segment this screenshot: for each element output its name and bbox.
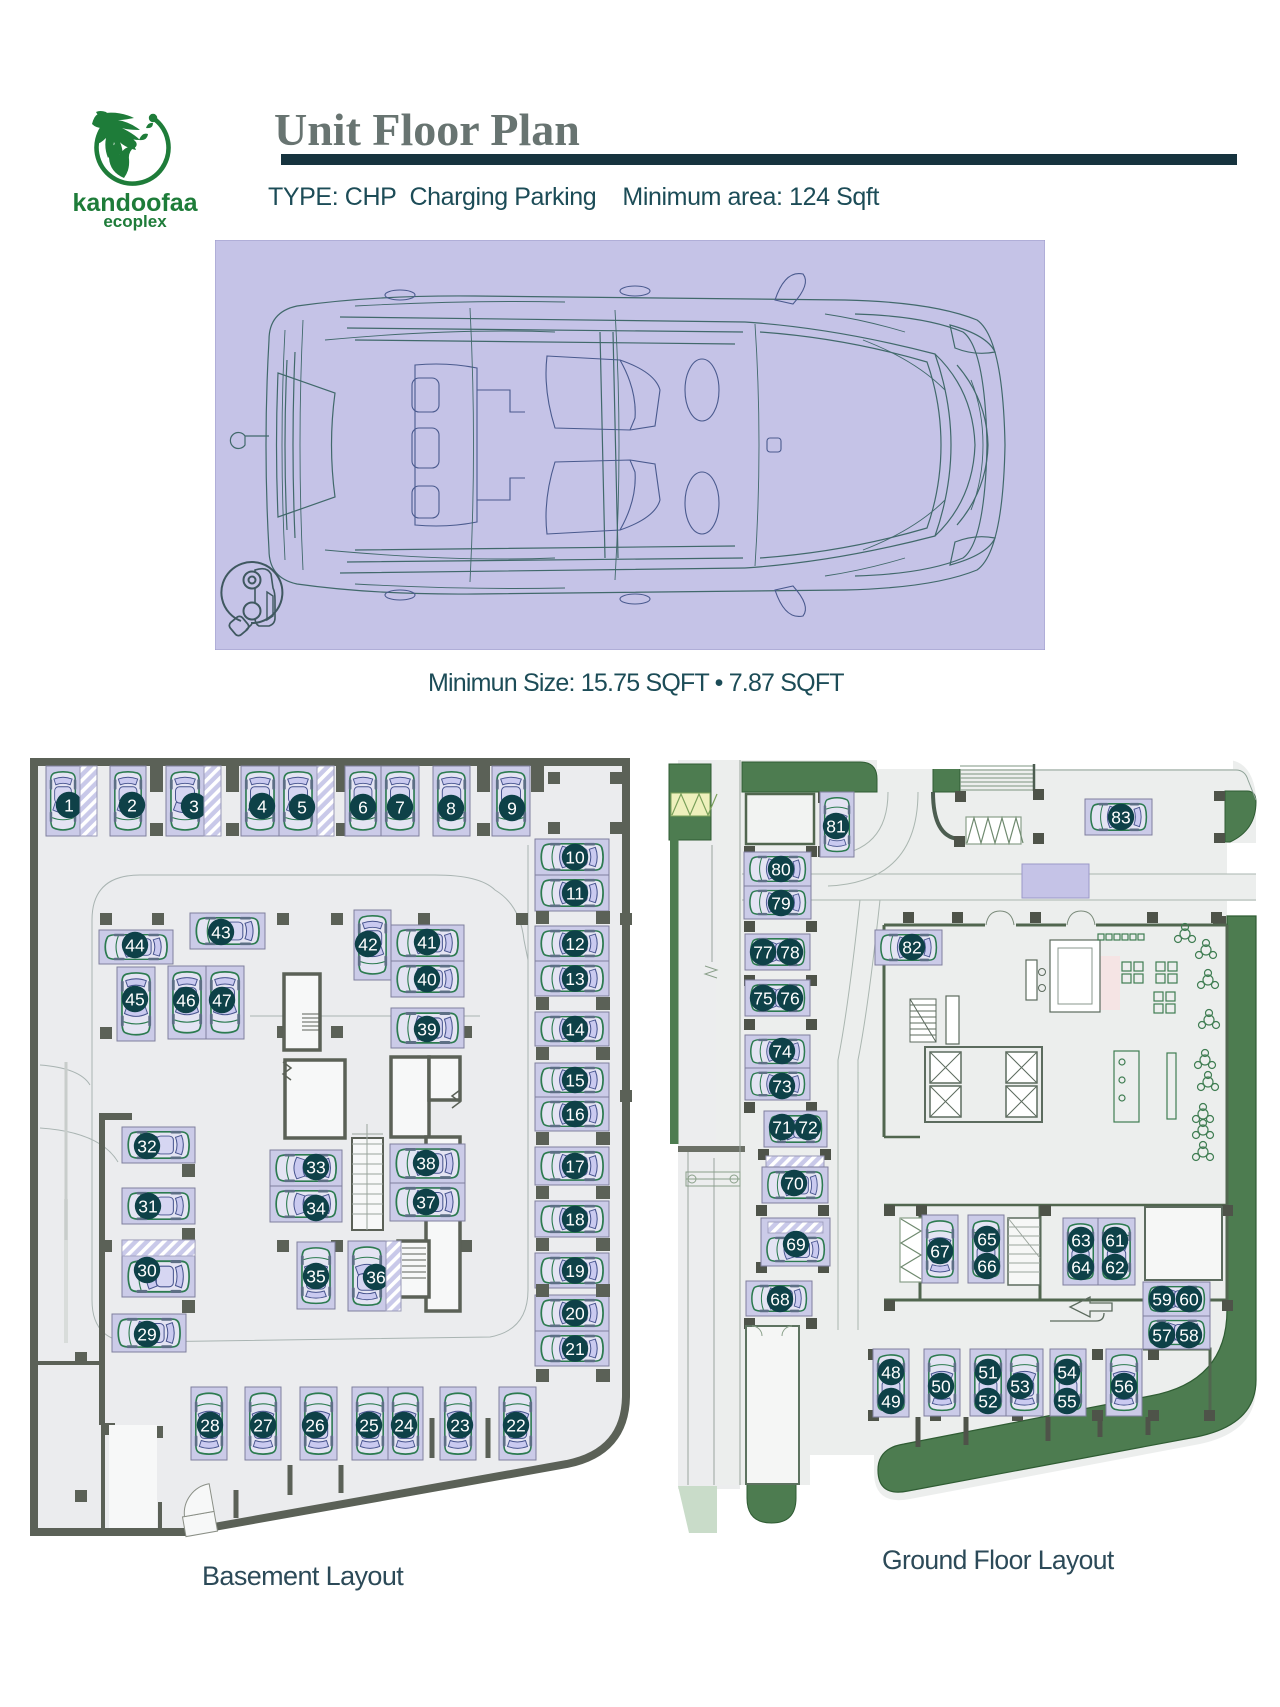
- svg-text:22: 22: [506, 1416, 525, 1436]
- svg-text:70: 70: [784, 1174, 804, 1194]
- svg-text:17: 17: [565, 1157, 584, 1177]
- svg-text:14: 14: [565, 1020, 585, 1040]
- svg-text:18: 18: [565, 1210, 584, 1230]
- svg-text:44: 44: [125, 936, 145, 956]
- svg-text:80: 80: [771, 860, 791, 880]
- svg-text:35: 35: [306, 1267, 325, 1287]
- svg-text:39: 39: [417, 1020, 436, 1040]
- svg-text:30: 30: [137, 1261, 157, 1281]
- svg-text:7: 7: [395, 798, 405, 818]
- svg-text:5: 5: [297, 798, 307, 818]
- svg-text:81: 81: [826, 817, 845, 837]
- svg-text:53: 53: [1010, 1377, 1029, 1397]
- svg-text:73: 73: [772, 1077, 791, 1097]
- svg-text:67: 67: [930, 1242, 949, 1262]
- svg-text:26: 26: [305, 1416, 324, 1436]
- svg-text:9: 9: [507, 799, 517, 819]
- svg-text:62: 62: [1105, 1258, 1124, 1278]
- svg-text:56: 56: [1114, 1377, 1133, 1397]
- svg-text:58: 58: [1179, 1326, 1198, 1346]
- svg-text:25: 25: [359, 1416, 378, 1436]
- svg-text:46: 46: [176, 991, 195, 1011]
- svg-text:55: 55: [1057, 1392, 1076, 1412]
- svg-text:33: 33: [306, 1158, 325, 1178]
- svg-text:52: 52: [978, 1392, 997, 1412]
- svg-text:29: 29: [137, 1325, 156, 1345]
- svg-text:12: 12: [565, 934, 584, 954]
- svg-text:48: 48: [881, 1363, 900, 1383]
- svg-text:3: 3: [189, 797, 199, 817]
- svg-text:63: 63: [1071, 1231, 1090, 1251]
- svg-text:49: 49: [881, 1392, 900, 1412]
- svg-text:51: 51: [978, 1363, 997, 1383]
- svg-text:19: 19: [565, 1261, 584, 1281]
- svg-text:2: 2: [127, 796, 137, 816]
- svg-text:15: 15: [565, 1071, 584, 1091]
- svg-text:50: 50: [931, 1377, 951, 1397]
- svg-text:82: 82: [902, 938, 921, 958]
- svg-text:47: 47: [212, 991, 231, 1011]
- svg-text:20: 20: [565, 1304, 585, 1324]
- svg-text:13: 13: [565, 969, 584, 989]
- svg-text:37: 37: [416, 1193, 435, 1213]
- svg-text:24: 24: [394, 1416, 414, 1436]
- svg-text:54: 54: [1057, 1363, 1077, 1383]
- svg-text:66: 66: [977, 1257, 996, 1277]
- svg-text:72: 72: [798, 1118, 817, 1138]
- svg-text:6: 6: [358, 798, 368, 818]
- svg-text:78: 78: [780, 943, 799, 963]
- svg-text:75: 75: [753, 989, 772, 1009]
- svg-text:69: 69: [786, 1235, 805, 1255]
- svg-text:34: 34: [306, 1199, 326, 1219]
- svg-text:68: 68: [770, 1290, 789, 1310]
- svg-text:8: 8: [446, 799, 456, 819]
- svg-text:43: 43: [211, 923, 230, 943]
- svg-text:45: 45: [125, 990, 144, 1010]
- svg-text:57: 57: [1152, 1326, 1171, 1346]
- svg-text:71: 71: [772, 1118, 791, 1138]
- svg-text:31: 31: [138, 1197, 157, 1217]
- svg-text:28: 28: [200, 1416, 219, 1436]
- svg-text:27: 27: [253, 1416, 272, 1436]
- svg-text:16: 16: [565, 1105, 584, 1125]
- svg-text:21: 21: [565, 1339, 584, 1359]
- svg-text:41: 41: [417, 933, 436, 953]
- svg-text:1: 1: [64, 796, 74, 816]
- svg-text:4: 4: [257, 797, 267, 817]
- svg-text:60: 60: [1179, 1290, 1199, 1310]
- svg-text:23: 23: [450, 1416, 469, 1436]
- svg-text:65: 65: [977, 1230, 996, 1250]
- svg-text:40: 40: [417, 970, 437, 990]
- svg-text:32: 32: [137, 1137, 156, 1157]
- svg-text:74: 74: [772, 1042, 792, 1062]
- svg-text:76: 76: [780, 989, 799, 1009]
- svg-text:36: 36: [366, 1268, 385, 1288]
- svg-text:11: 11: [566, 884, 584, 904]
- svg-text:77: 77: [753, 943, 772, 963]
- svg-text:83: 83: [1111, 808, 1130, 828]
- svg-text:64: 64: [1071, 1258, 1091, 1278]
- svg-text:10: 10: [565, 848, 585, 868]
- svg-text:79: 79: [771, 894, 790, 914]
- svg-text:38: 38: [416, 1154, 435, 1174]
- svg-text:42: 42: [358, 935, 377, 955]
- svg-text:59: 59: [1152, 1290, 1171, 1310]
- svg-text:61: 61: [1105, 1231, 1124, 1251]
